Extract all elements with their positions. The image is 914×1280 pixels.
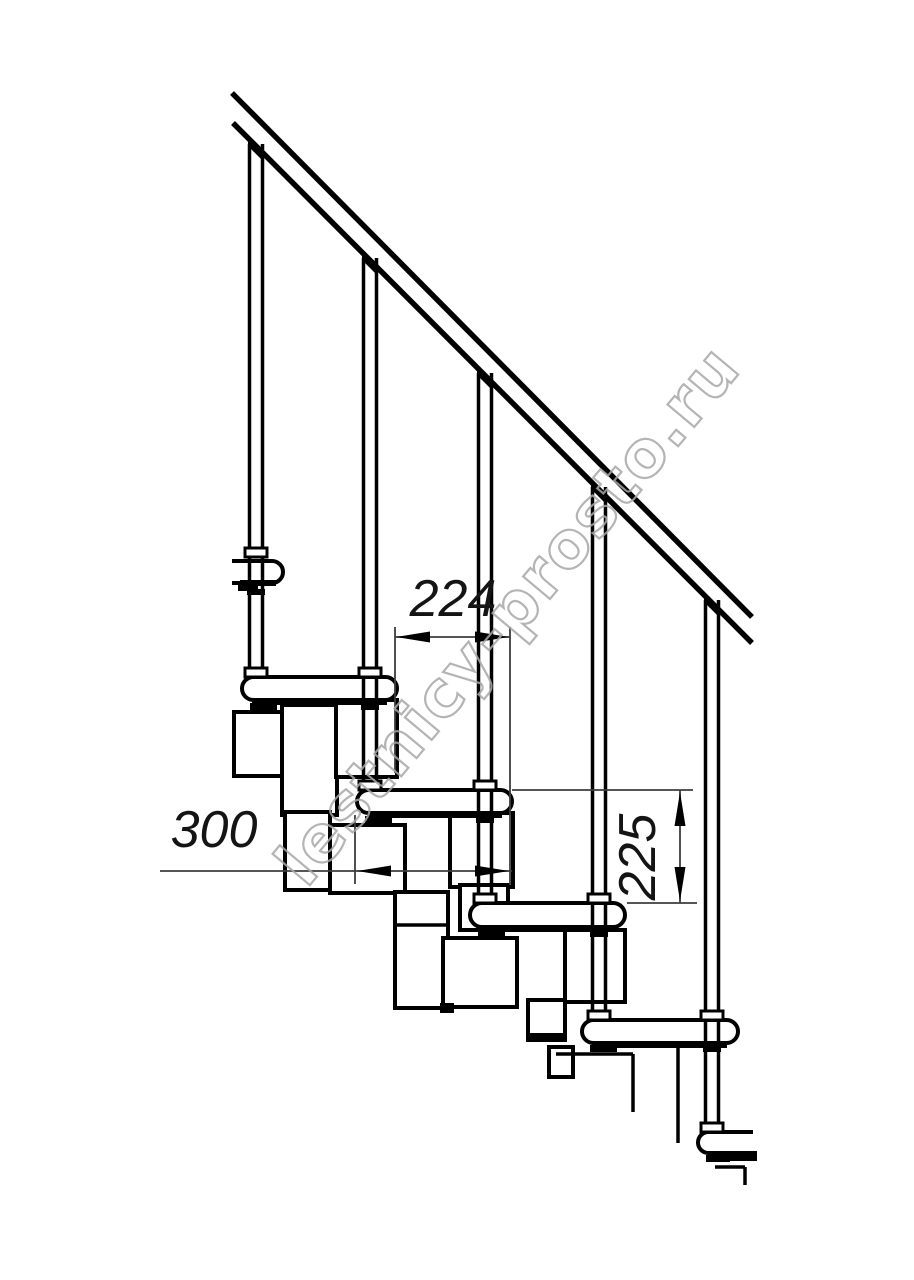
baluster-flange xyxy=(245,668,267,677)
step-module xyxy=(330,825,405,893)
baluster-connector xyxy=(247,589,265,595)
step-module xyxy=(395,892,448,1008)
baluster-connector xyxy=(590,931,608,937)
tread xyxy=(470,903,625,927)
dimension-label-rise: 225 xyxy=(612,814,664,901)
tread-partial xyxy=(698,1132,753,1153)
tread-foot xyxy=(590,1045,617,1052)
baluster-flange xyxy=(588,894,610,903)
tread xyxy=(357,790,512,813)
module-shadow xyxy=(440,1003,454,1013)
baluster-flange xyxy=(474,781,496,790)
baluster-connector xyxy=(361,704,379,710)
baluster-flange xyxy=(245,548,267,557)
baluster-connector xyxy=(703,1046,721,1052)
step-module xyxy=(282,705,337,815)
baluster-connector xyxy=(476,817,494,823)
tread xyxy=(242,677,397,700)
dim-arrowhead xyxy=(396,632,430,643)
staircase-drawing-canvas: 224 300 225 lestnicy-prosto.ru xyxy=(0,0,914,1280)
tread-foot xyxy=(706,1155,730,1162)
step-module xyxy=(285,812,330,890)
tread xyxy=(582,1020,738,1043)
step-module xyxy=(336,700,397,777)
dim-arrowhead xyxy=(675,867,686,901)
tread-foot xyxy=(250,703,277,710)
dim-arrowhead xyxy=(675,792,686,826)
tread-foot xyxy=(478,929,505,936)
baluster-flange xyxy=(588,1011,610,1020)
baluster-flange xyxy=(474,894,496,903)
baluster-flange xyxy=(701,1011,723,1020)
staircase-technical-drawing xyxy=(0,0,914,1280)
module-shadow xyxy=(528,1033,565,1042)
dimension-label-run: 224 xyxy=(410,573,497,625)
dimension-label-tread-depth: 300 xyxy=(171,804,258,856)
step-module xyxy=(549,1047,573,1077)
tread-partial xyxy=(232,561,283,583)
step-module xyxy=(443,938,517,1007)
step-module xyxy=(450,813,513,887)
baluster-flange xyxy=(359,668,381,677)
tread-foot xyxy=(365,816,392,823)
baluster-flange xyxy=(701,1123,723,1132)
baluster-flange xyxy=(359,781,381,790)
step-module xyxy=(565,930,625,1002)
